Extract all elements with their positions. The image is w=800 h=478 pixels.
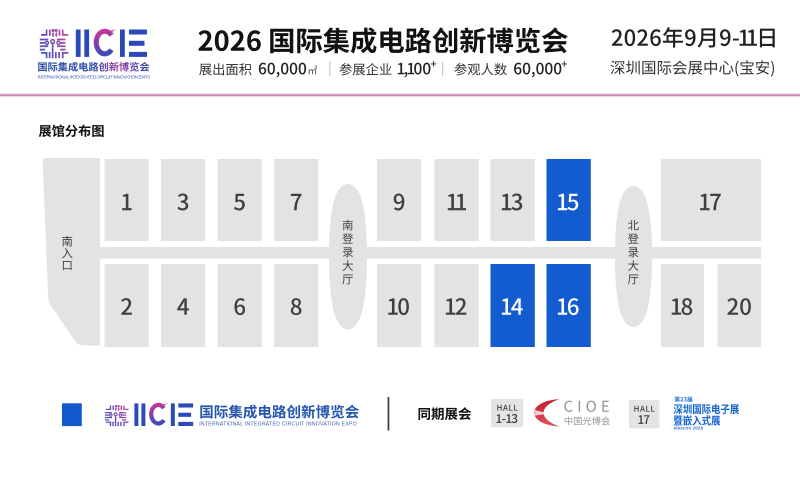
svg-text:elexcon 2026: elexcon 2026	[674, 426, 704, 431]
svg-text:INTERNATIONAL INTEGRATED CIRCU: INTERNATIONAL INTEGRATED CIRCUIT INNOVAT…	[38, 74, 151, 79]
svg-text:INTERNATIONAL INTEGRATED CIRCU: INTERNATIONAL INTEGRATED CIRCUIT INNOVAT…	[199, 421, 357, 427]
